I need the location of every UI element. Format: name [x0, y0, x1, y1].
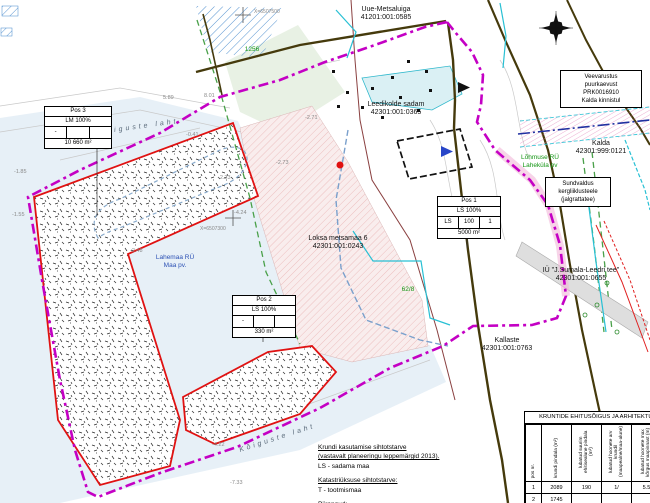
svg-text:-2.73: -2.73: [276, 160, 289, 166]
svg-text:-4.24: -4.24: [234, 210, 247, 216]
pipeline-corridor: [518, 106, 650, 148]
table-col-header: krundi pindala (m²): [542, 425, 572, 482]
table-col-header: pos nr.: [526, 425, 542, 482]
zone-label-blue-1: Lahemaa RÜ: [156, 253, 195, 261]
stamp-cell: [90, 127, 111, 138]
well-note-line: Kalda kinnistul: [562, 97, 640, 105]
parcel-code-tee: 42301:001:0655: [556, 275, 607, 282]
parcel-code-leedikolde: 42301:001:0365: [371, 109, 422, 116]
well-note-line: puurkaevust: [562, 81, 640, 89]
stamp-area: 5000 m²: [438, 229, 500, 238]
servitude-note-box: Sundvaldus kergliiklusteele (jalgrattate…: [545, 177, 611, 207]
svg-text:5.89: 5.89: [163, 95, 174, 101]
stamp-cell: 1: [480, 217, 500, 228]
red-point-marker: [337, 162, 344, 169]
marsh-hatch-small-1: [2, 6, 18, 16]
svg-text:-2.23: -2.23: [218, 175, 231, 181]
stamp-cell: -: [233, 316, 254, 327]
detail-plan-map: X=6507500 X=6507300 Uue-Metsaluiga 41201…: [0, 0, 650, 503]
table-col-header: lubatud hoonete max kõrgus maapinnast (m…: [632, 425, 650, 482]
well-note-line: PRK0016910: [562, 89, 640, 97]
building-rights-table: KRUNTIDE EHITUSÕIGUS JA ARHITEKTUUR pos …: [524, 411, 650, 503]
table-title: KRUNTIDE EHITUSÕIGUS JA ARHITEKTUUR: [525, 412, 650, 424]
stamp-area: 330 m²: [233, 328, 295, 337]
survey-label-1: X=6507500: [254, 9, 280, 15]
svg-text:-2.71: -2.71: [305, 115, 318, 121]
marsh-hatch-small-2: [1, 28, 12, 36]
table-row: 12089 1901/ 5.5: [526, 482, 650, 494]
stamp-cell: LS: [438, 217, 459, 228]
table-row: 21745: [526, 494, 650, 503]
plot-stamp-pos3: Pos 3 LM 100% - 10 660 m²: [44, 106, 112, 149]
parcel-code-kalda: 42301:999:0121: [576, 148, 627, 155]
plot-stamp-pos2: Pos 2 LS 100% - 330 m²: [232, 295, 296, 338]
stamp-area: 10 660 m²: [45, 139, 111, 148]
zone-label-green-1: Lõhmuse RÜ: [521, 153, 559, 161]
legend-item-2: T - tootmismaa: [318, 486, 478, 495]
stamp-use: LS 100%: [438, 207, 500, 217]
svg-text:-1.85: -1.85: [14, 169, 27, 175]
stamp-cell: -: [45, 127, 67, 138]
parcel-code-kallaste: 42301:001:0763: [482, 345, 533, 352]
stamp-pos: Pos 3: [45, 107, 111, 117]
legend-title-1: Krundi kasutamise sihtotstarve: [318, 443, 478, 452]
well-note-box: Veevarustus puurkaevust PRK0016910 Kalda…: [560, 70, 642, 108]
parcel-code-loksa: 42301:001:0243: [313, 243, 364, 250]
parcel-label-uue-metsaluiga: Uue-Metsaluiga: [361, 6, 410, 13]
stamp-pos: Pos 1: [438, 197, 500, 207]
zone-label-green-2: Laheküla pv: [522, 162, 558, 169]
legend: Krundi kasutamise sihtotstarve (vastaval…: [318, 443, 478, 503]
legend-title-2: Katastriüksuse sihtotstarve:: [318, 476, 478, 485]
parcel-label-tee: IÜ "J.Sumala-Leedri tee": [543, 266, 620, 274]
well-note-line: Veevarustus: [562, 73, 640, 81]
stamp-cell: [275, 316, 295, 327]
plot-stamp-pos1: Pos 1 LS 100% LS1001 5000 m²: [437, 196, 501, 239]
svg-text:-1.55: -1.55: [12, 212, 25, 218]
svg-text:-7.33: -7.33: [230, 480, 243, 486]
servitude-note-line: kergliiklusteele: [547, 188, 609, 196]
parcel-label-kallaste: Kallaste: [495, 337, 520, 344]
stamp-use: LM 100%: [45, 117, 111, 127]
stamp-cell: 100: [459, 217, 480, 228]
parcel-label-loksa: Loksa metsamaa 6: [308, 235, 367, 242]
svg-text:8.01: 8.01: [204, 93, 215, 99]
north-compass-icon: [539, 11, 573, 45]
servitude-note-line: Sundvaldus: [547, 180, 609, 188]
table-col-header: lubatud hoonete arv krundil (maapealne/m…: [602, 425, 632, 482]
svg-text:-0.41: -0.41: [186, 132, 199, 138]
zone-label-blue-2: Maa pv.: [164, 262, 187, 269]
triangle-marker-black: [458, 82, 470, 93]
triangle-marker-blue: [441, 146, 453, 157]
legend-subtitle-1: (vastavalt planeeringu leppemärgid 2013)…: [318, 452, 478, 461]
green-number-2: 62/8: [402, 286, 415, 293]
svg-text:-4.22: -4.22: [212, 442, 225, 448]
svg-text:-2.48: -2.48: [130, 248, 143, 254]
survey-label-2: X=6507300: [200, 226, 226, 232]
stamp-cell: [254, 316, 275, 327]
parcel-label-leedikolde: Leedikolde sadam: [368, 101, 425, 108]
stamp-cell: [67, 127, 89, 138]
building-envelope: [397, 129, 472, 179]
servitude-note-line: (jalgrattatee): [547, 196, 609, 204]
parcel-code-uue-metsaluiga: 41201:001:0585: [361, 14, 412, 21]
stamp-pos: Pos 2: [233, 296, 295, 306]
table-col-header: lubatud suurim ehitisealune pindala (m²): [572, 425, 602, 482]
legend-item-1: LS - sadama maa: [318, 462, 478, 471]
green-number-1: 1256: [245, 46, 260, 53]
parcel-label-kalda: Kalda: [592, 140, 610, 147]
stamp-use: LS 100%: [233, 306, 295, 316]
